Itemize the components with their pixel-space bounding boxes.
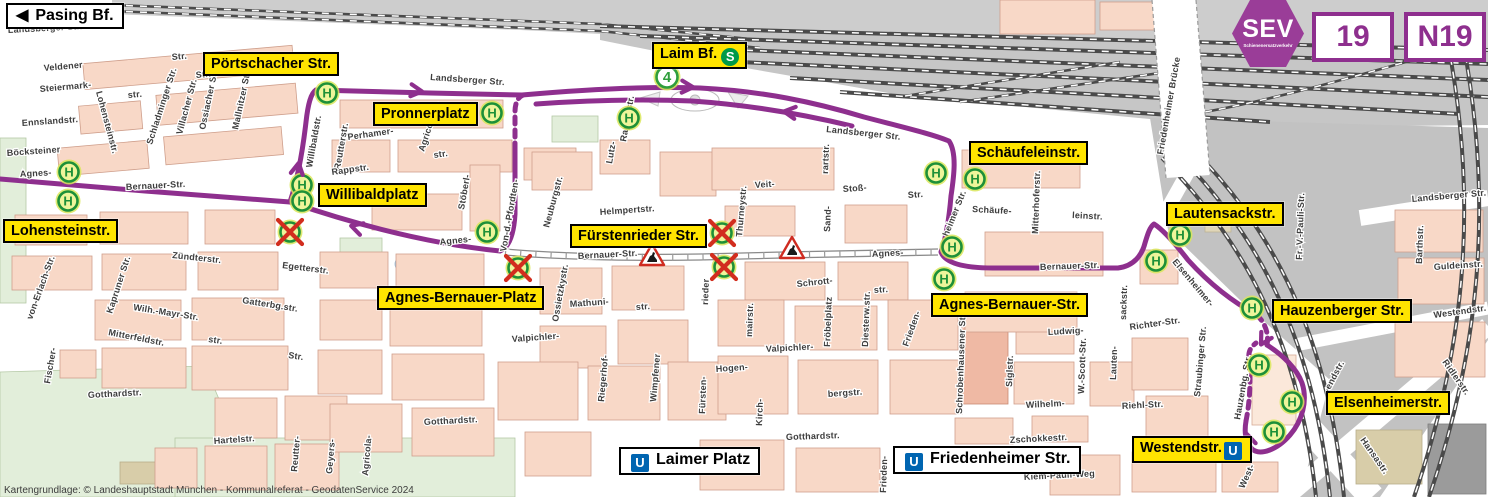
hauzenberger-str-label: Hauzenberger Str. (1272, 299, 1412, 323)
line-badge-n19: N19 (1404, 12, 1486, 62)
schaeufeleinstr-label: Schäufeleinstr. (969, 141, 1088, 165)
line-badge-19: 19 (1312, 12, 1394, 62)
stop-label-text: Willibaldplatz (326, 187, 419, 203)
stop-label-text: Pörtschacher Str. (211, 56, 331, 72)
pasing-bf-label: ◀Pasing Bf. (6, 3, 124, 29)
fuerstenrieder-str-label: Fürstenrieder Str. (570, 224, 707, 248)
laimer-platz-label: ULaimer Platz (619, 447, 760, 475)
stop-label-text: Pronnerplatz (381, 106, 470, 122)
u-bahn-icon: U (1224, 442, 1242, 460)
elsenheimerstr-label: Elsenheimerstr. (1326, 391, 1450, 415)
stop-label-text: Elsenheimerstr. (1334, 395, 1442, 411)
sev-map: Landsberger Str.VeldenerSteiermark-Ennsl… (0, 0, 1488, 497)
lautensackstr-label: Lautensackstr. (1166, 202, 1284, 226)
stop-label-text: Agnes-Bernauer-Str. (939, 297, 1080, 313)
stop-label-text: Friedenheimer Str. (930, 450, 1071, 467)
laim-bf-label: Laim Bf.S (652, 42, 747, 69)
left-arrow-icon: ◀ (16, 7, 28, 24)
sev-badge-subtext: Schienenersatzverkehr (1232, 44, 1304, 49)
copyright-note: Kartengrundlage: © Landeshauptstadt Münc… (4, 485, 414, 496)
portschacher-str-label: Pörtschacher Str. (203, 52, 339, 76)
agnes-bernauer-str-label: Agnes-Bernauer-Str. (931, 293, 1088, 317)
stop-label-text: Laim Bf. (660, 46, 717, 62)
sev-badge-text: SEV (1232, 17, 1304, 42)
stop-label-text: Agnes-Bernauer-Platz (385, 290, 536, 306)
stop-label-text: Schäufeleinstr. (977, 145, 1080, 161)
stop-label-text: Westendstr. (1140, 440, 1222, 456)
friedenheimer-str-label: UFriedenheimer Str. (893, 446, 1081, 474)
willibaldplatz-label: Willibaldplatz (318, 183, 427, 207)
s-bahn-icon: S (721, 48, 739, 66)
westendstr-label: Westendstr.U (1132, 436, 1252, 463)
stop-label-text: Fürstenrieder Str. (578, 228, 699, 244)
stop-name-labels: ◀Pasing Bf.Pörtschacher Str.Pronnerplatz… (0, 0, 1488, 497)
u-bahn-icon: U (905, 453, 923, 471)
stop-label-text: Lohensteinstr. (11, 223, 110, 239)
stop-label-text: Laimer Platz (656, 451, 750, 468)
agnes-bernauer-platz-label: Agnes-Bernauer-Platz (377, 286, 544, 310)
stop-label-text: Lautensackstr. (1174, 206, 1276, 222)
stop-label-text: Pasing Bf. (35, 7, 113, 24)
pronnerplatz-label: Pronnerplatz (373, 102, 478, 126)
stop-label-text: Hauzenberger Str. (1280, 303, 1404, 319)
lohensteinstr-label: Lohensteinstr. (3, 219, 118, 243)
u-bahn-icon: U (631, 454, 649, 472)
